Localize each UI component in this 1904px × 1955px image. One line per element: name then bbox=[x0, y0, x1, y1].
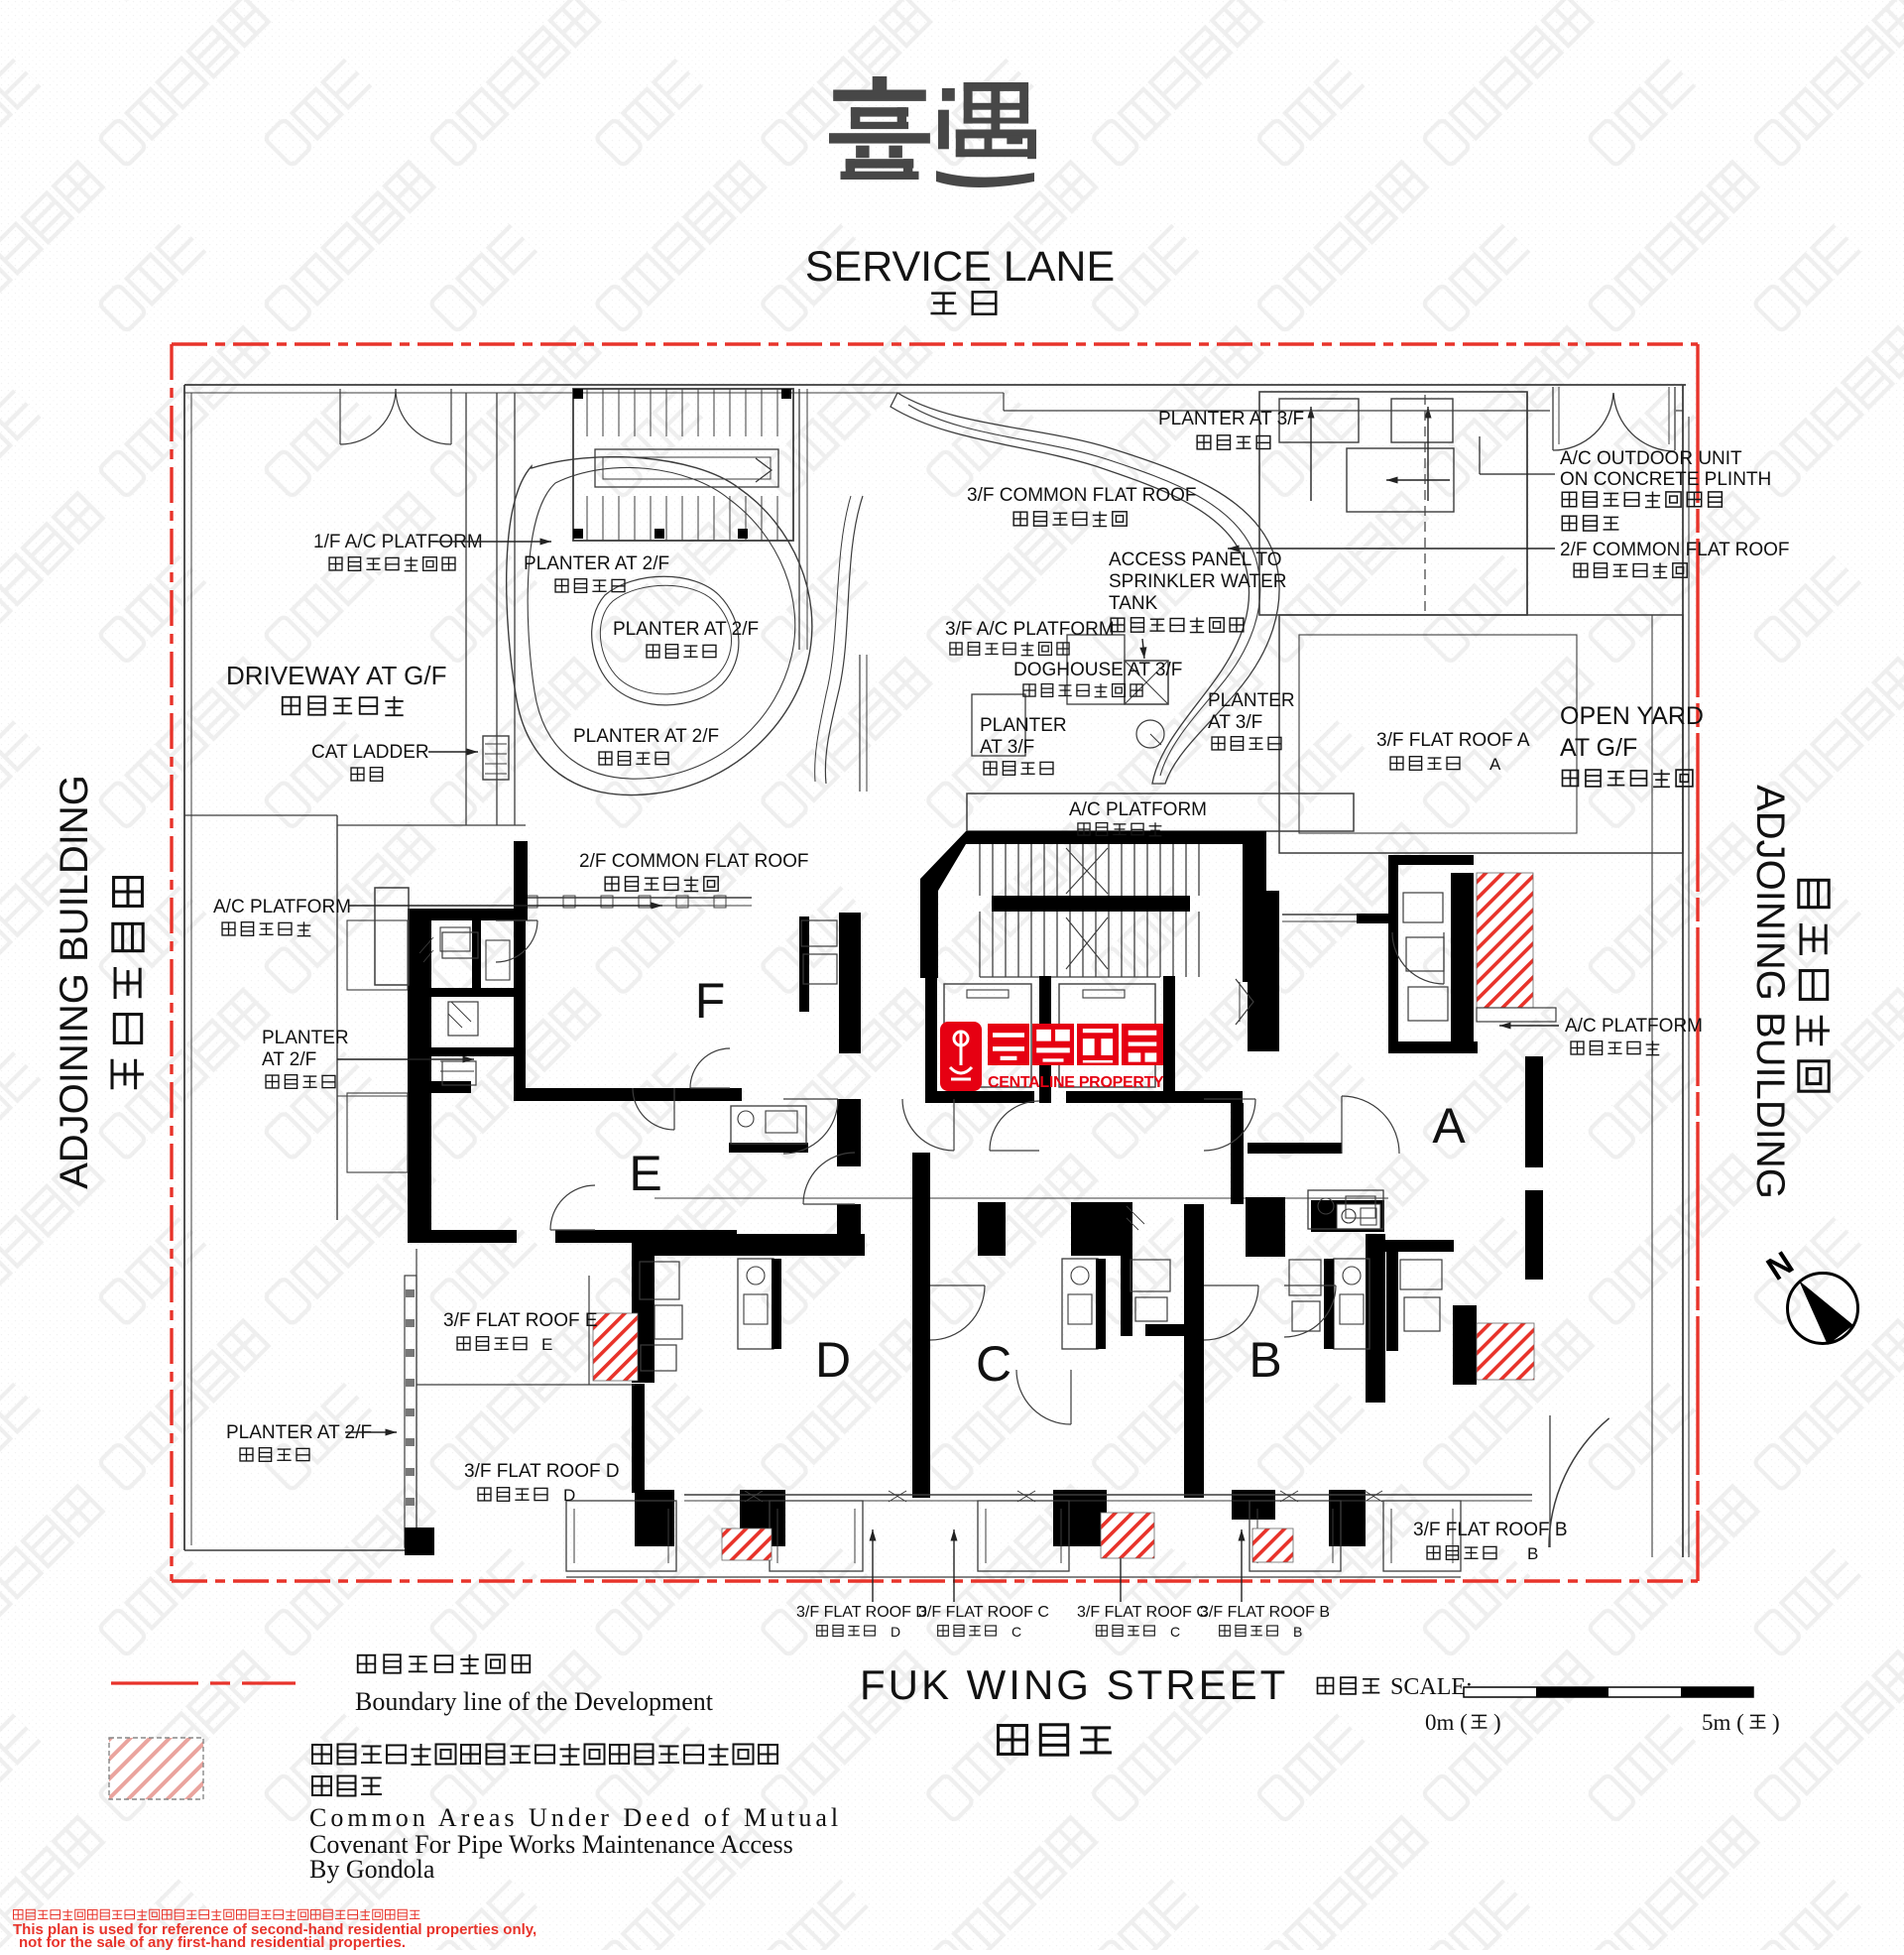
svg-text:Boundary line of the Developme: Boundary line of the Development bbox=[355, 1687, 714, 1716]
svg-text:SPRINKLER WATER: SPRINKLER WATER bbox=[1109, 571, 1286, 592]
svg-text:A: A bbox=[1489, 755, 1501, 774]
svg-text:PLANTER AT 3/F: PLANTER AT 3/F bbox=[1158, 409, 1304, 429]
svg-text:AT 2/F: AT 2/F bbox=[262, 1049, 316, 1070]
svg-text:ACCESS PANEL TO: ACCESS PANEL TO bbox=[1109, 550, 1282, 570]
svg-text:A/C OUTDOOR UNIT: A/C OUTDOOR UNIT bbox=[1560, 448, 1742, 469]
svg-text:PLANTER AT 2/F: PLANTER AT 2/F bbox=[524, 553, 669, 574]
svg-text:D: D bbox=[815, 1332, 851, 1388]
svg-text:3/F FLAT ROOF B: 3/F FLAT ROOF B bbox=[1413, 1520, 1568, 1540]
svg-text:DOGHOUSE AT 3/F: DOGHOUSE AT 3/F bbox=[1013, 660, 1182, 680]
svg-text:A: A bbox=[1432, 1098, 1466, 1154]
svg-text:AT G/F: AT G/F bbox=[1560, 734, 1637, 762]
svg-text:TANK: TANK bbox=[1109, 593, 1158, 614]
svg-text:not for the sale of any first-: not for the sale of any first-hand resid… bbox=[19, 1934, 406, 1950]
svg-text:B: B bbox=[1293, 1624, 1302, 1640]
svg-text:By Gondola: By Gondola bbox=[309, 1855, 435, 1884]
svg-text:): ) bbox=[1772, 1710, 1780, 1735]
svg-text:3/F FLAT ROOF E: 3/F FLAT ROOF E bbox=[443, 1310, 598, 1331]
svg-text:AT 3/F: AT 3/F bbox=[980, 737, 1034, 758]
svg-text:C: C bbox=[1170, 1624, 1180, 1640]
svg-text:3/F FLAT ROOF A: 3/F FLAT ROOF A bbox=[1376, 730, 1530, 751]
svg-text:ADJOINING BUILDING: ADJOINING BUILDING bbox=[53, 775, 96, 1189]
svg-text:ON CONCRETE PLINTH: ON CONCRETE PLINTH bbox=[1560, 469, 1771, 490]
svg-text:3/F A/C PLATFORM: 3/F A/C PLATFORM bbox=[945, 619, 1115, 640]
svg-text:A/C PLATFORM: A/C PLATFORM bbox=[1069, 799, 1207, 820]
svg-text:B: B bbox=[1527, 1544, 1538, 1563]
svg-text:F: F bbox=[695, 973, 726, 1029]
svg-text:5m (: 5m ( bbox=[1702, 1710, 1744, 1735]
svg-text:B: B bbox=[1249, 1332, 1281, 1388]
svg-text:SCALE:: SCALE: bbox=[1390, 1674, 1473, 1700]
svg-text:PLANTER AT 2/F: PLANTER AT 2/F bbox=[613, 619, 759, 640]
svg-text:SERVICE LANE: SERVICE LANE bbox=[805, 243, 1115, 291]
svg-text:A/C PLATFORM: A/C PLATFORM bbox=[213, 897, 351, 917]
svg-text:D: D bbox=[891, 1624, 900, 1640]
svg-text:2/F COMMON FLAT ROOF: 2/F COMMON FLAT ROOF bbox=[579, 851, 809, 872]
svg-text:0m (: 0m ( bbox=[1425, 1710, 1468, 1735]
svg-text:ADJOINING BUILDING: ADJOINING BUILDING bbox=[1748, 785, 1792, 1199]
svg-text:PLANTER: PLANTER bbox=[1208, 690, 1295, 711]
svg-text:OPEN YARD: OPEN YARD bbox=[1560, 702, 1704, 730]
svg-text:3/F FLAT ROOF D: 3/F FLAT ROOF D bbox=[464, 1461, 620, 1482]
svg-text:3/F FLAT ROOF D: 3/F FLAT ROOF D bbox=[796, 1604, 927, 1621]
svg-text:FUK WING STREET: FUK WING STREET bbox=[860, 1661, 1288, 1708]
svg-text:E: E bbox=[541, 1335, 552, 1354]
svg-text:AT 3/F: AT 3/F bbox=[1208, 712, 1262, 733]
svg-text:2/F COMMON FLAT ROOF: 2/F COMMON FLAT ROOF bbox=[1560, 540, 1790, 560]
svg-text:3/F COMMON FLAT ROOF: 3/F COMMON FLAT ROOF bbox=[967, 485, 1197, 506]
svg-text:3/F FLAT ROOF B: 3/F FLAT ROOF B bbox=[1200, 1604, 1330, 1621]
svg-text:3/F FLAT ROOF C: 3/F FLAT ROOF C bbox=[1077, 1604, 1208, 1621]
svg-text:CENTALINE PROPERTY: CENTALINE PROPERTY bbox=[988, 1074, 1164, 1091]
svg-text:E: E bbox=[629, 1146, 661, 1201]
svg-text:CAT LADDER: CAT LADDER bbox=[311, 742, 429, 763]
svg-text:DRIVEWAY AT G/F: DRIVEWAY AT G/F bbox=[226, 661, 447, 690]
svg-text:D: D bbox=[563, 1486, 575, 1505]
svg-text:PLANTER AT 2/F: PLANTER AT 2/F bbox=[573, 726, 719, 747]
svg-text:A/C PLATFORM: A/C PLATFORM bbox=[1565, 1016, 1703, 1037]
svg-text:C: C bbox=[976, 1336, 1011, 1392]
svg-text:3/F FLAT ROOF C: 3/F FLAT ROOF C bbox=[918, 1604, 1049, 1621]
svg-text:): ) bbox=[1493, 1710, 1501, 1735]
svg-text:PLANTER: PLANTER bbox=[262, 1028, 349, 1048]
svg-text:PLANTER: PLANTER bbox=[980, 715, 1067, 736]
svg-text:Common Areas Under Deed of Mut: Common Areas Under Deed of Mutual bbox=[309, 1803, 842, 1832]
svg-text:C: C bbox=[1011, 1624, 1021, 1640]
